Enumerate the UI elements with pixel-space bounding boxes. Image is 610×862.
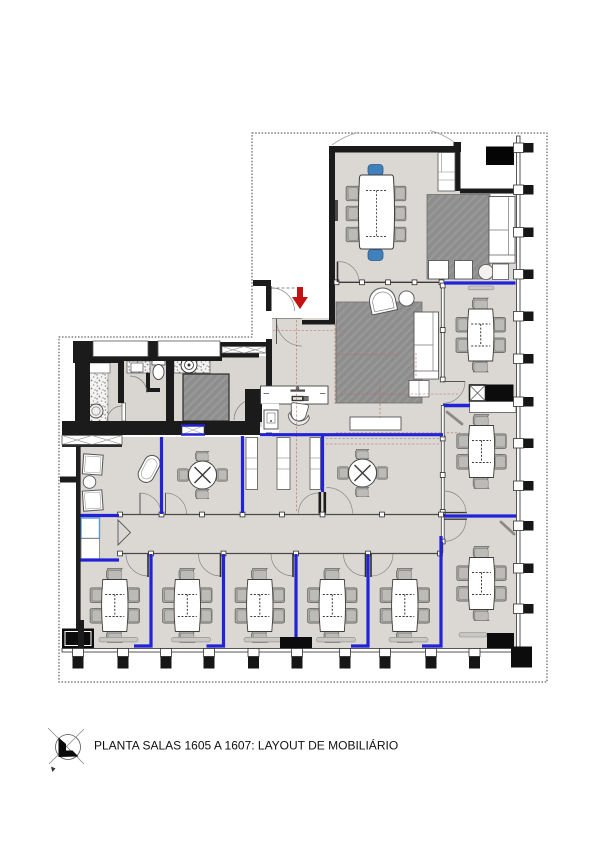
svg-text:PLANTA SALAS 1605 A 1607: LAYO: PLANTA SALAS 1605 A 1607: LAYOUT DE MOBI… (94, 738, 398, 753)
